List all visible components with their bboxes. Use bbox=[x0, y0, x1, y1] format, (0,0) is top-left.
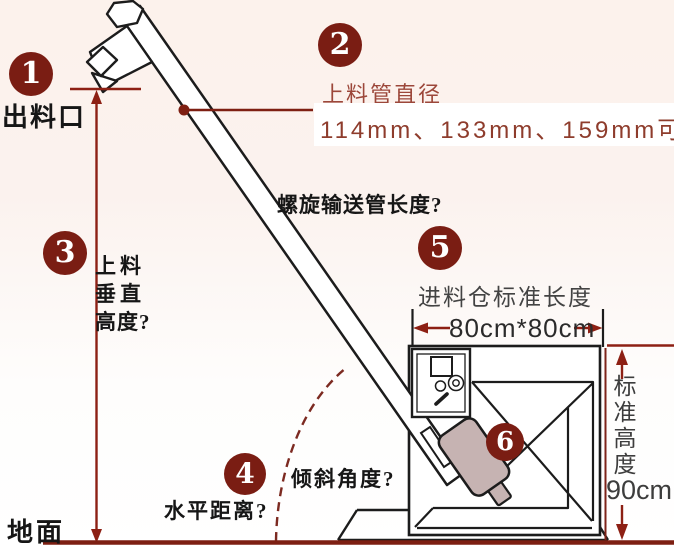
control-box bbox=[412, 349, 470, 417]
callout-2-badge: 2 bbox=[318, 23, 362, 67]
hopper-length-label: 进料仓标准长度 bbox=[418, 278, 593, 312]
callout-1-badge: 1 bbox=[9, 52, 53, 96]
callout-6-badge: 6 bbox=[486, 423, 524, 461]
incline-angle-label: 倾斜角度? bbox=[291, 463, 396, 493]
screw-conveyor-diagram: 1 2 3 4 5 6 出料口 上料管直径 114mm、133mm、159mm可… bbox=[0, 0, 674, 550]
standard-height-label: 标准高度 bbox=[606, 374, 640, 478]
standard-height-value: 90cm bbox=[606, 475, 672, 506]
leader-dot bbox=[179, 105, 190, 116]
control-display bbox=[431, 357, 452, 376]
pipe-diameter-values: 114mm、133mm、159mm可 bbox=[320, 110, 674, 145]
hopper-size-value: 80cm*80cm bbox=[449, 313, 595, 344]
ground-label: 地面 bbox=[7, 512, 65, 549]
callout-3-badge: 3 bbox=[43, 231, 87, 275]
vertical-height-label-line1: 上料 bbox=[95, 250, 145, 280]
callout-4-badge: 4 bbox=[224, 453, 266, 495]
pipe-length-label: 螺旋输送管长度? bbox=[277, 189, 443, 219]
horizontal-distance-label: 水平距离? bbox=[164, 495, 269, 525]
discharge-outlet-label: 出料口 bbox=[2, 97, 86, 134]
vertical-height-label-line2: 垂直 bbox=[95, 278, 145, 308]
tube-top-cap bbox=[107, 1, 143, 27]
callout-5-badge: 5 bbox=[418, 226, 462, 270]
angle-arc-dashed bbox=[276, 368, 346, 541]
vertical-height-label-line3: 高度? bbox=[95, 306, 151, 336]
